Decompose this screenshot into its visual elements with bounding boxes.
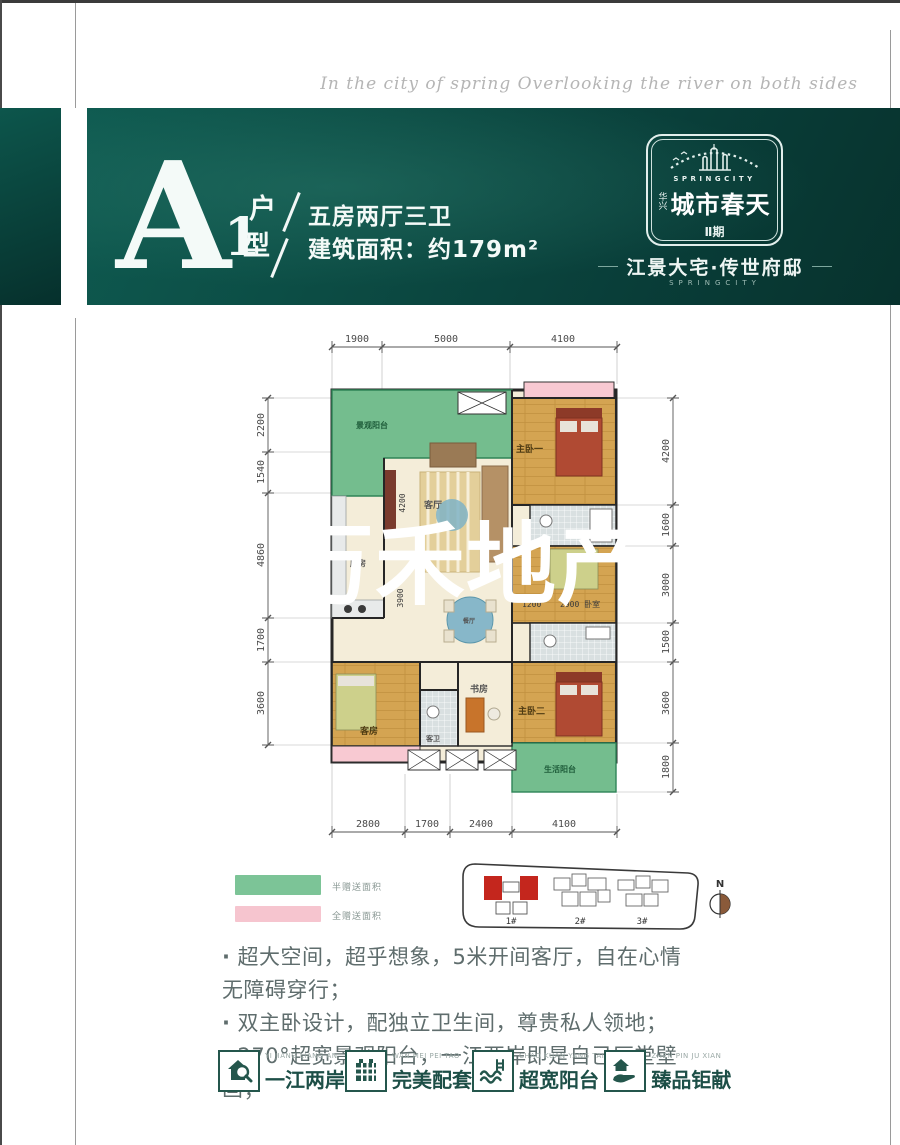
dim-bottom-1: 2800 <box>356 819 380 830</box>
label-guest: 客房 <box>359 725 378 737</box>
dim-left-5: 3600 <box>256 691 267 715</box>
watermark: 万禾地产 <box>284 516 648 615</box>
bed1-pillow2 <box>581 421 598 432</box>
feature-row: YI JIANG LIANG AN 一江两岸 WAN MEI PEI TAO 完… <box>218 1050 690 1093</box>
unit-xing-label: 型 <box>243 233 270 260</box>
feature-amenities-zh: 完美配套 <box>392 1064 472 1093</box>
feature-premium: ZHEN PIN JU XIAN 臻品钜献 <box>604 1050 731 1093</box>
logo-english-name: SPRINGCITY <box>673 175 755 183</box>
dim-bottom-4: 4100 <box>552 819 576 830</box>
gift-balcony-top <box>524 382 614 398</box>
label-view-balcony: 景观阳台 <box>356 420 388 430</box>
tagline-line-left <box>598 266 618 267</box>
unit-letter: A <box>116 142 231 290</box>
selling-point-1: 超大空间，超乎想象，5米开间客厅，自在心情无障碍穿行； <box>222 941 702 1007</box>
flyer-page: In the city of spring Overlooking the ri… <box>0 0 900 1145</box>
logo-brand-name: 城市春天 <box>671 185 771 220</box>
dim-left-1: 2200 <box>256 413 267 437</box>
feature-premium-zh: 臻品钜献 <box>651 1064 731 1093</box>
bed1-headboard <box>556 408 602 418</box>
feature-amenities: WAN MEI PEI TAO 完美配套 <box>345 1050 472 1093</box>
logo-ornament-icon <box>659 136 771 174</box>
dim-left-4: 1700 <box>256 628 267 652</box>
feature-premium-en: ZHEN PIN JU XIAN <box>651 1052 731 1060</box>
label-master2: 主卧二 <box>518 705 545 717</box>
feature-balcony-en: CHAO KUAN YANG TAI <box>519 1052 604 1060</box>
sink-2 <box>586 627 610 639</box>
dim-left-2: 1540 <box>256 460 267 484</box>
dining-chair-4 <box>486 630 496 642</box>
dining-chair-3 <box>444 630 454 642</box>
dim-right-4: 1500 <box>661 630 672 654</box>
dim-left-3: 4860 <box>256 543 267 567</box>
project-logo: SPRINGCITY 华兴 城市春天 Ⅱ期 <box>646 134 783 246</box>
bed2-pillow <box>560 685 577 695</box>
script-slogan: In the city of spring Overlooking the ri… <box>320 74 858 94</box>
feature-river: YI JIANG LIANG AN 一江两岸 <box>218 1050 345 1093</box>
tagline-line-right <box>812 266 832 267</box>
banner-left-block <box>0 108 61 305</box>
hand-house-icon <box>611 1057 639 1085</box>
compass-icon: N <box>710 879 730 918</box>
legend-swatch-half-gift <box>235 875 321 895</box>
dim-bottom-2: 1700 <box>415 819 439 830</box>
legend-swatch-full-gift <box>235 906 321 922</box>
vertical-rule-top <box>75 3 76 108</box>
bed2-headboard <box>556 672 602 682</box>
site-plan: 1# 2# 3# N <box>455 858 735 943</box>
unit-hu-label: 户 <box>249 196 276 223</box>
selling-point-2: 双主卧设计，配独立卫生间，尊贵私人领地； <box>222 1007 702 1040</box>
building-1-label: 1# <box>506 917 517 927</box>
feature-amenities-en: WAN MEI PEI TAO <box>392 1052 472 1060</box>
vertical-rule-bottom <box>75 318 76 1145</box>
tagline-row: 江景大宅·传世府邸 <box>598 253 832 280</box>
dim-right-5: 3600 <box>661 691 672 715</box>
compass-north-label: N <box>716 879 724 890</box>
sofa-top <box>430 443 476 467</box>
legend-label-full-gift: 全赠送面积 <box>332 909 382 922</box>
top-border-line <box>0 0 900 3</box>
toilet-3 <box>427 706 439 718</box>
label-master1: 主卧一 <box>516 443 543 455</box>
dim-right-1: 4200 <box>661 439 672 463</box>
guest-pillow <box>338 676 374 686</box>
waves-ladder-icon <box>479 1057 507 1085</box>
window-boxes-bottom <box>408 750 516 770</box>
dim-right-2: 1600 <box>661 513 672 537</box>
dim-bottom-3: 2400 <box>469 819 493 830</box>
dim-top-1: 1900 <box>345 334 369 345</box>
dim-top-3: 4100 <box>551 334 575 345</box>
river-icon-box <box>218 1050 260 1092</box>
gift-balcony-bottom <box>332 746 420 762</box>
toilet-2 <box>544 635 556 647</box>
dim-right-3: 3000 <box>661 573 672 597</box>
feature-balcony: CHAO KUAN YANG TAI 超宽阳台 <box>472 1050 604 1093</box>
balcony-icon-box <box>472 1050 514 1092</box>
study-chair <box>488 708 500 720</box>
legend-label-half-gift: 半赠送面积 <box>332 880 382 893</box>
label-living: 客厅 <box>423 499 442 511</box>
house-magnifier-icon <box>225 1057 253 1085</box>
unit-rooms-line: 五房两厅三卫 <box>308 201 539 234</box>
label-dining: 餐厅 <box>462 617 475 625</box>
tagline-text: 江景大宅·传世府邸 <box>626 253 803 280</box>
label-guest-bath: 客卫 <box>425 734 440 743</box>
feature-balcony-zh: 超宽阳台 <box>519 1064 604 1093</box>
bed2-pillow2 <box>581 685 598 695</box>
logo-brand-row: 华兴 城市春天 <box>659 185 771 220</box>
logo-phase: Ⅱ期 <box>705 223 725 240</box>
feature-river-en: YI JIANG LIANG AN <box>265 1052 345 1060</box>
premium-icon-box <box>604 1050 646 1092</box>
label-study: 书房 <box>470 683 488 695</box>
study-desk <box>466 698 484 732</box>
building-3-label: 3# <box>637 917 648 927</box>
unit-area-line: 建筑面积：约179m² <box>308 234 539 267</box>
tagline-english: SPRINGCITY <box>598 279 832 287</box>
label-life-balcony: 生活阳台 <box>544 764 576 774</box>
logo-brand-prefix: 华兴 <box>659 194 669 212</box>
dim-right-6: 1800 <box>661 755 672 779</box>
feature-river-zh: 一江两岸 <box>265 1064 345 1093</box>
bed1-pillow <box>560 421 577 432</box>
inner-dim-living: 4200 <box>398 493 407 512</box>
building-2-label: 2# <box>575 917 586 927</box>
amenities-icon-box <box>345 1050 387 1092</box>
dim-chain-top <box>329 341 620 353</box>
buildings-icon <box>352 1057 380 1085</box>
dim-top-2: 5000 <box>434 334 458 345</box>
unit-description: 五房两厅三卫 建筑面积：约179m² <box>308 201 539 267</box>
